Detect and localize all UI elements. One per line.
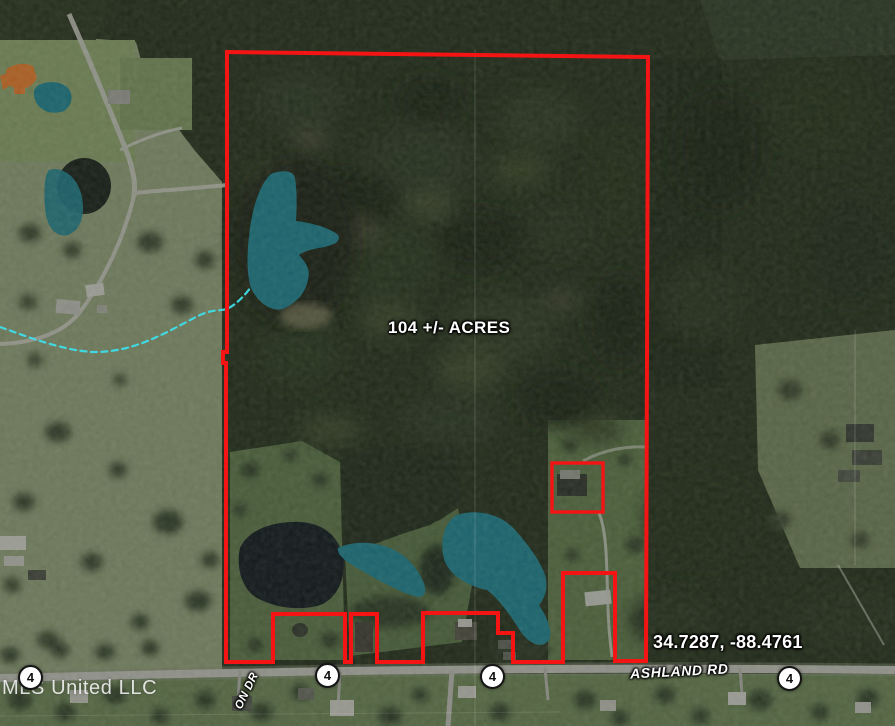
satellite-imagery [0,0,895,726]
satellite-map: 104 +/- ACRES 34.7287, -88.4761 ASHLAND … [0,0,895,726]
route-marker: 4 [18,665,43,690]
route-marker: 4 [315,663,340,688]
route-marker-label: 4 [27,670,34,685]
route-marker: 4 [777,666,802,691]
coordinates-label: 34.7287, -88.4761 [653,632,803,653]
acreage-label: 104 +/- ACRES [388,318,510,338]
route-marker-label: 4 [489,669,496,684]
route-marker-label: 4 [786,671,793,686]
route-marker-label: 4 [324,668,331,683]
noise-light [0,0,895,726]
route-marker: 4 [480,664,505,689]
